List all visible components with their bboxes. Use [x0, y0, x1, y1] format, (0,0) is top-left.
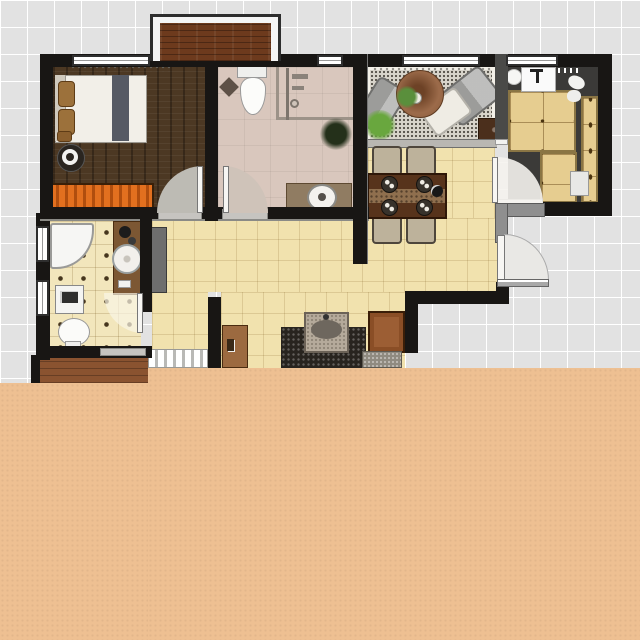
brown-door-leaf[interactable]	[222, 325, 248, 368]
wall-center-divider	[353, 54, 368, 264]
teapot	[431, 185, 443, 197]
wall-living-kitchen-divider	[495, 54, 508, 145]
dining-chair[interactable]	[372, 146, 402, 176]
window-bathroom-top[interactable]	[317, 55, 343, 66]
balcony-wood-floor	[160, 23, 271, 61]
wall-right	[598, 54, 612, 216]
round-speaker-center	[66, 153, 74, 161]
step-strip	[148, 349, 208, 368]
bathroom-top-door[interactable]	[223, 166, 229, 213]
entry-door-sill	[497, 279, 549, 287]
kitchen-item	[567, 90, 581, 102]
bed-cushion	[57, 131, 72, 142]
wall-stub-right	[405, 291, 418, 353]
window-bathroom-left-1[interactable]	[36, 226, 49, 262]
wall-left-upper	[40, 54, 53, 221]
place-setting	[381, 176, 398, 193]
round-basin	[112, 244, 142, 274]
entry-wood-floor	[39, 355, 148, 383]
bar-stool[interactable]	[362, 351, 402, 368]
window-bedroom[interactable]	[72, 55, 150, 66]
place-setting	[416, 199, 433, 216]
bedroom-door[interactable]	[197, 166, 203, 213]
entry-door[interactable]	[497, 235, 505, 280]
shower-handle	[292, 86, 304, 90]
bar-faucet	[323, 314, 329, 320]
shower-knob	[290, 99, 299, 108]
bed-runner	[112, 75, 129, 141]
soap-dish	[118, 280, 131, 288]
kitchen-door-frame	[495, 139, 508, 145]
hall-cabinet[interactable]	[150, 227, 167, 293]
peach-overlay-main	[148, 368, 640, 640]
place-setting	[381, 199, 398, 216]
window-bathroom-left-2[interactable]	[36, 280, 49, 316]
window-kitchen[interactable]	[506, 55, 558, 66]
faucet-bar	[530, 69, 543, 72]
kitchen-door[interactable]	[492, 157, 498, 203]
bathroom-left-door[interactable]	[137, 293, 143, 333]
wall-dining-bottom	[405, 291, 509, 304]
room-hallway-floor	[152, 218, 497, 292]
shower-handle	[292, 74, 308, 79]
toiletry-item	[119, 226, 131, 238]
floor-plan-canvas	[0, 0, 640, 640]
potted-plant-dark[interactable]	[320, 118, 352, 150]
sink-drain	[318, 193, 326, 201]
kitchen-label-glyphs	[558, 68, 582, 73]
peach-overlay-left	[0, 383, 148, 640]
shower-glass-vertical	[276, 64, 279, 120]
green-plant[interactable]	[364, 110, 396, 140]
bar-sink-basin	[311, 320, 342, 339]
appliance[interactable]	[570, 171, 589, 196]
ceiling-light	[506, 69, 522, 85]
green-plant[interactable]	[396, 86, 418, 108]
entry-threshold	[100, 348, 146, 356]
wall-bedroom-bathroom-divider	[205, 54, 218, 221]
kitchen-counter-main[interactable]	[508, 90, 576, 152]
wall-kitchen-bottom	[543, 202, 612, 216]
bar-chair-seat	[374, 317, 399, 347]
dining-chair[interactable]	[406, 146, 436, 176]
door-handle	[227, 339, 234, 351]
bed-pillow	[58, 81, 75, 107]
wall-entry-stub	[31, 355, 40, 383]
shower-panel[interactable]	[286, 68, 289, 120]
window-living[interactable]	[402, 55, 480, 66]
washer-panel	[60, 291, 78, 303]
wall-stub-left	[208, 297, 221, 376]
